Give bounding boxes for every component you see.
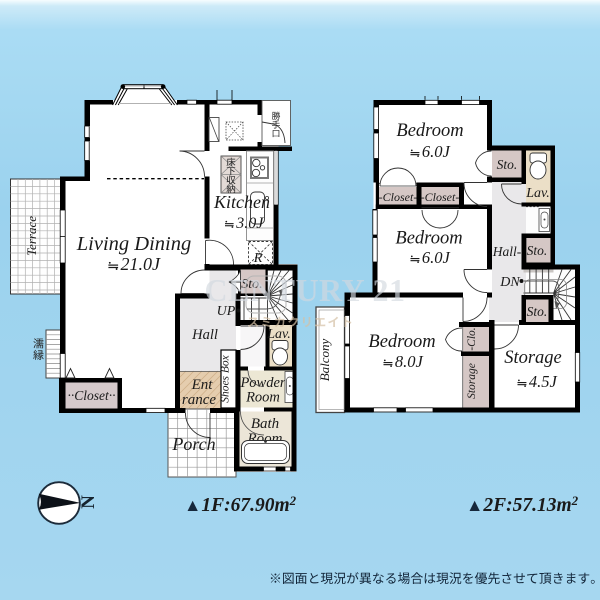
svg-text:4.5J: 4.5J [529,372,558,391]
svg-text:R: R [253,251,263,266]
svg-text:N: N [78,495,99,509]
svg-text:-Closet-: -Closet- [421,190,460,204]
svg-text:DN: DN [499,275,520,290]
svg-text:Storage: Storage [466,363,478,399]
svg-text:Lav.: Lav. [525,186,549,201]
svg-text:··Closet··: ··Closet·· [67,388,115,403]
svg-text:Sto.: Sto. [527,304,548,319]
svg-text:6.0J: 6.0J [422,142,451,161]
svg-text:Bath: Bath [251,416,279,432]
svg-text:Terrace: Terrace [24,216,39,256]
svg-text:▲2F:57.13m2: ▲2F:57.13m2 [466,493,579,516]
svg-text:8.0J: 8.0J [395,352,424,371]
svg-text:Shoes Box: Shoes Box [220,354,232,402]
svg-text:Porch: Porch [171,434,215,454]
svg-text:Hall-: Hall- [492,244,522,259]
svg-text:-Closet-: -Closet- [379,190,418,204]
svg-text:Storage: Storage [504,348,562,368]
svg-text:Hall: Hall [191,327,218,343]
svg-text:Bedroom: Bedroom [395,229,462,249]
svg-text:Ent: Ent [191,377,214,393]
svg-text:Sto.: Sto. [527,243,548,258]
svg-text:Lav.: Lav. [266,327,290,342]
svg-text:3.0J: 3.0J [235,215,264,232]
svg-text:Living Dining: Living Dining [76,233,191,255]
svg-text:Room: Room [245,390,280,406]
svg-text:Bedroom: Bedroom [368,332,435,352]
svg-text:rance: rance [182,392,216,408]
svg-text:Balcony: Balcony [317,338,332,381]
svg-text:Kitchen: Kitchen [213,192,270,212]
svg-text:6.0J: 6.0J [422,248,451,267]
svg-text:Bedroom: Bedroom [396,121,463,141]
svg-text:CENTURY 21: CENTURY 21 [205,272,406,308]
svg-text:Sto.: Sto. [497,157,518,172]
svg-text:-Clo.: -Clo. [466,327,478,350]
svg-text:21.0J: 21.0J [121,254,162,274]
svg-text:▲1F:67.90m2: ▲1F:67.90m2 [184,493,297,516]
